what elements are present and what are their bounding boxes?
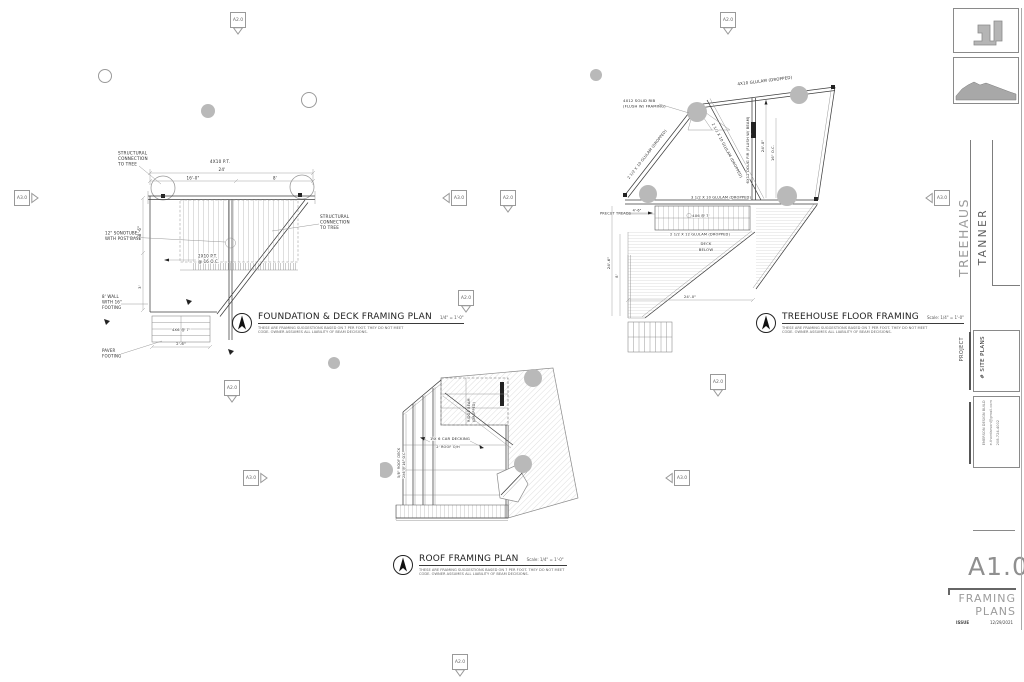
svg-text:BELOW: BELOW: [699, 247, 714, 252]
client-name: TANNER: [977, 208, 989, 265]
tree-circle: [201, 104, 215, 118]
elevation-marker: A2.0: [230, 12, 246, 28]
svg-text:TO TREE: TO TREE: [117, 162, 137, 167]
svg-text:16" O.C.: 16" O.C.: [771, 145, 775, 161]
elevation-marker: A2.0: [720, 12, 736, 28]
svg-text:6X12 DOUG FIR (FLUSH W/ BEAM): 6X12 DOUG FIR (FLUSH W/ BEAM): [746, 116, 750, 183]
svg-text:24'-0": 24'-0": [684, 294, 696, 299]
titleblock-rule: [973, 530, 1015, 531]
titleblock-rule: [948, 588, 950, 595]
firm-name: EMERSON DESIGN BUILD: [982, 400, 986, 445]
marker-label: A3.0: [677, 476, 687, 481]
marker-pointer-icon: [442, 192, 450, 204]
svg-text:3 1/2 X 10 GLULAM (DROPPED): 3 1/2 X 10 GLULAM (DROPPED): [691, 196, 751, 200]
svg-text:24'-6": 24'-6": [606, 257, 611, 270]
issue-label: ISSUE: [956, 620, 969, 625]
marker-label: A2.0: [503, 196, 513, 201]
elevation-marker: A2.0: [452, 654, 468, 670]
site-profile-box: [953, 57, 1019, 104]
sheet-title-line1: FRAMING: [958, 592, 1016, 605]
foundation-plan-disclaimer: THESE ARE FRAMING SUGGESTIONS BASED ON 7…: [258, 326, 438, 335]
marker-pointer-icon: [502, 205, 514, 213]
firm-phone: 208-724-4002: [996, 400, 1000, 445]
elevation-marker: A3.0: [674, 470, 690, 486]
svg-text:2' ROOF O/H: 2' ROOF O/H: [436, 445, 460, 449]
marker-pointer-icon: [460, 305, 472, 313]
svg-text:2X6 @ 16" O.C.: 2X6 @ 16" O.C.: [402, 451, 406, 478]
titleblock-rule: [948, 588, 1016, 590]
elevation-marker: A2.0: [710, 374, 726, 390]
firm-email: e.thordarson@gmail.com: [989, 400, 993, 445]
firm-contact: EMERSON DESIGN BUILD e.thordarson@gmail.…: [982, 400, 1000, 445]
project-name: TREEHAUS: [956, 198, 971, 277]
north-arrow-icon: [231, 312, 253, 334]
treehouse-plan-title: TREEHOUSE FLOOR FRAMING: [782, 312, 919, 322]
marker-label: A3.0: [246, 476, 256, 481]
svg-text:STRUCTURAL: STRUCTURAL: [320, 214, 350, 219]
marker-pointer-icon: [31, 192, 39, 204]
marker-label: A2.0: [713, 380, 723, 385]
sheet-number: A1.0: [968, 552, 1024, 581]
firm-logo-icon: [954, 9, 1020, 54]
titleblock-rule: [992, 285, 1020, 286]
elevation-marker: A3.0: [243, 470, 259, 486]
roof-plan-scale: Scale: 1/4" = 1'-0": [527, 557, 564, 562]
svg-text:3': 3': [137, 285, 142, 289]
tree-circle: [98, 69, 112, 83]
marker-pointer-icon: [712, 389, 724, 397]
svg-text:@ 16 O.C.: @ 16 O.C.: [198, 259, 219, 264]
svg-text:DECK: DECK: [700, 241, 711, 246]
svg-text:TO TREE: TO TREE: [319, 225, 339, 230]
svg-text:2 1/2 X 12 GLULAM (DROPPED): 2 1/2 X 12 GLULAM (DROPPED): [670, 233, 730, 237]
svg-text:(DROPPED): (DROPPED): [472, 402, 476, 422]
firm-logo-box: [953, 8, 1019, 53]
svg-text:4X10 GLULAM (DROPPED): 4X10 GLULAM (DROPPED): [737, 75, 793, 87]
foundation-plan-drawing: 4X10 P.T. 24' 16'-0" 8' 8'-6" 3' 2'-6" S…: [88, 135, 358, 385]
issue-date: 12/29/2021: [990, 620, 1013, 625]
marker-label: A3.0: [937, 196, 947, 201]
marker-pointer-icon: [665, 472, 673, 484]
titleblock-bar: [969, 332, 971, 390]
elevation-marker: A3.0: [14, 190, 30, 206]
svg-text:5/8" ROOF DECK: 5/8" ROOF DECK: [397, 447, 401, 478]
drawing-sheet: 4X10 P.T. 24' 16'-0" 8' 8'-6" 3' 2'-6" S…: [0, 0, 1024, 682]
svg-text:16'-0": 16'-0": [187, 176, 200, 181]
svg-text:8': 8': [615, 274, 619, 278]
marker-pointer-icon: [925, 192, 933, 204]
svg-text:1 X 6 CAR DECKING: 1 X 6 CAR DECKING: [430, 436, 470, 441]
marker-label: A2.0: [233, 18, 243, 23]
svg-text:WITH 16": WITH 16": [102, 300, 122, 305]
svg-text:4X6 @ 7': 4X6 @ 7': [172, 327, 190, 332]
elevation-marker: A2.0: [500, 190, 516, 206]
svg-text:PAVER: PAVER: [102, 348, 116, 353]
svg-text:4'-6": 4'-6": [633, 209, 642, 213]
terrain-profile-graphic: [954, 58, 1018, 103]
svg-text:8'-6": 8'-6": [137, 226, 142, 236]
treehouse-title-assembly: TREEHOUSE FLOOR FRAMING Scale: 1/4" = 1'…: [755, 312, 964, 335]
svg-text:4X6 @ 7': 4X6 @ 7': [692, 214, 709, 218]
marker-label: A2.0: [227, 386, 237, 391]
svg-text:RIDGE BEAM: RIDGE BEAM: [467, 398, 471, 422]
treehouse-plan-scale: Scale: 1/4" = 1'-0": [927, 315, 964, 320]
svg-text:CONNECTION: CONNECTION: [320, 220, 350, 225]
foundation-plan-scale: 1/4" = 1'-0": [440, 315, 464, 320]
roof-plan-drawing: RIDGE BEAM (DROPPED) 5/8" ROOF DECK 2X6 …: [380, 362, 590, 532]
marker-pointer-icon: [232, 27, 244, 35]
roof-plan-disclaimer: THESE ARE FRAMING SUGGESTIONS BASED ON 7…: [419, 568, 567, 577]
marker-label: A2.0: [723, 18, 733, 23]
svg-text:4X10 P.T.: 4X10 P.T.: [210, 159, 230, 164]
project-value: # SITE PLANS: [980, 336, 986, 379]
titleblock-rule: [992, 140, 993, 286]
svg-text:CONNECTION: CONNECTION: [118, 156, 148, 161]
foundation-title-assembly: FOUNDATION & DECK FRAMING PLAN 1/4" = 1'…: [231, 312, 464, 335]
svg-text:24': 24': [219, 167, 226, 172]
tree-circle: [301, 92, 317, 108]
svg-text:2X10 P.T.: 2X10 P.T.: [198, 254, 217, 259]
svg-text:24'-0": 24'-0": [760, 140, 765, 153]
roof-plan-title: ROOF FRAMING PLAN: [419, 554, 519, 564]
svg-text:FOOTING: FOOTING: [102, 354, 121, 359]
north-arrow-icon: [392, 554, 414, 576]
svg-text:8' WALL: 8' WALL: [102, 294, 120, 299]
marker-pointer-icon: [722, 27, 734, 35]
marker-label: A3.0: [17, 196, 27, 201]
svg-text:4X12 SOLID RIB: 4X12 SOLID RIB: [623, 98, 656, 103]
north-arrow-icon: [755, 312, 777, 334]
marker-pointer-icon: [454, 669, 466, 677]
svg-text:WITH POST BASE: WITH POST BASE: [105, 236, 142, 241]
svg-text:FOOTING: FOOTING: [102, 305, 121, 310]
marker-label: A3.0: [454, 196, 464, 201]
titleblock-bar: [969, 402, 971, 464]
titleblock-border: [1021, 8, 1022, 630]
elevation-marker: A2.0: [458, 290, 474, 306]
roof-title-assembly: ROOF FRAMING PLAN Scale: 1/4" = 1'-0" TH…: [392, 554, 567, 577]
marker-pointer-icon: [226, 395, 238, 403]
elevation-marker: A3.0: [451, 190, 467, 206]
foundation-plan-title: FOUNDATION & DECK FRAMING PLAN: [258, 312, 432, 322]
marker-label: A2.0: [455, 660, 465, 665]
svg-text:STRUCTURAL: STRUCTURAL: [118, 151, 148, 156]
marker-label: A2.0: [461, 296, 471, 301]
elevation-marker: A3.0: [934, 190, 950, 206]
project-label: PROJECT: [959, 337, 965, 361]
svg-text:12" SONOTUBE: 12" SONOTUBE: [105, 231, 138, 236]
svg-text:8': 8': [273, 176, 277, 181]
marker-pointer-icon: [260, 472, 268, 484]
sheet-title-line2: PLANS: [958, 605, 1016, 618]
svg-text:PRECUT TREADS: PRECUT TREADS: [600, 212, 632, 216]
elevation-marker: A2.0: [224, 380, 240, 396]
treehouse-plan-disclaimer: THESE ARE FRAMING SUGGESTIONS BASED ON 7…: [782, 326, 962, 335]
roof-notes: RIDGE BEAM (DROPPED) 5/8" ROOF DECK 2X6 …: [397, 398, 484, 478]
